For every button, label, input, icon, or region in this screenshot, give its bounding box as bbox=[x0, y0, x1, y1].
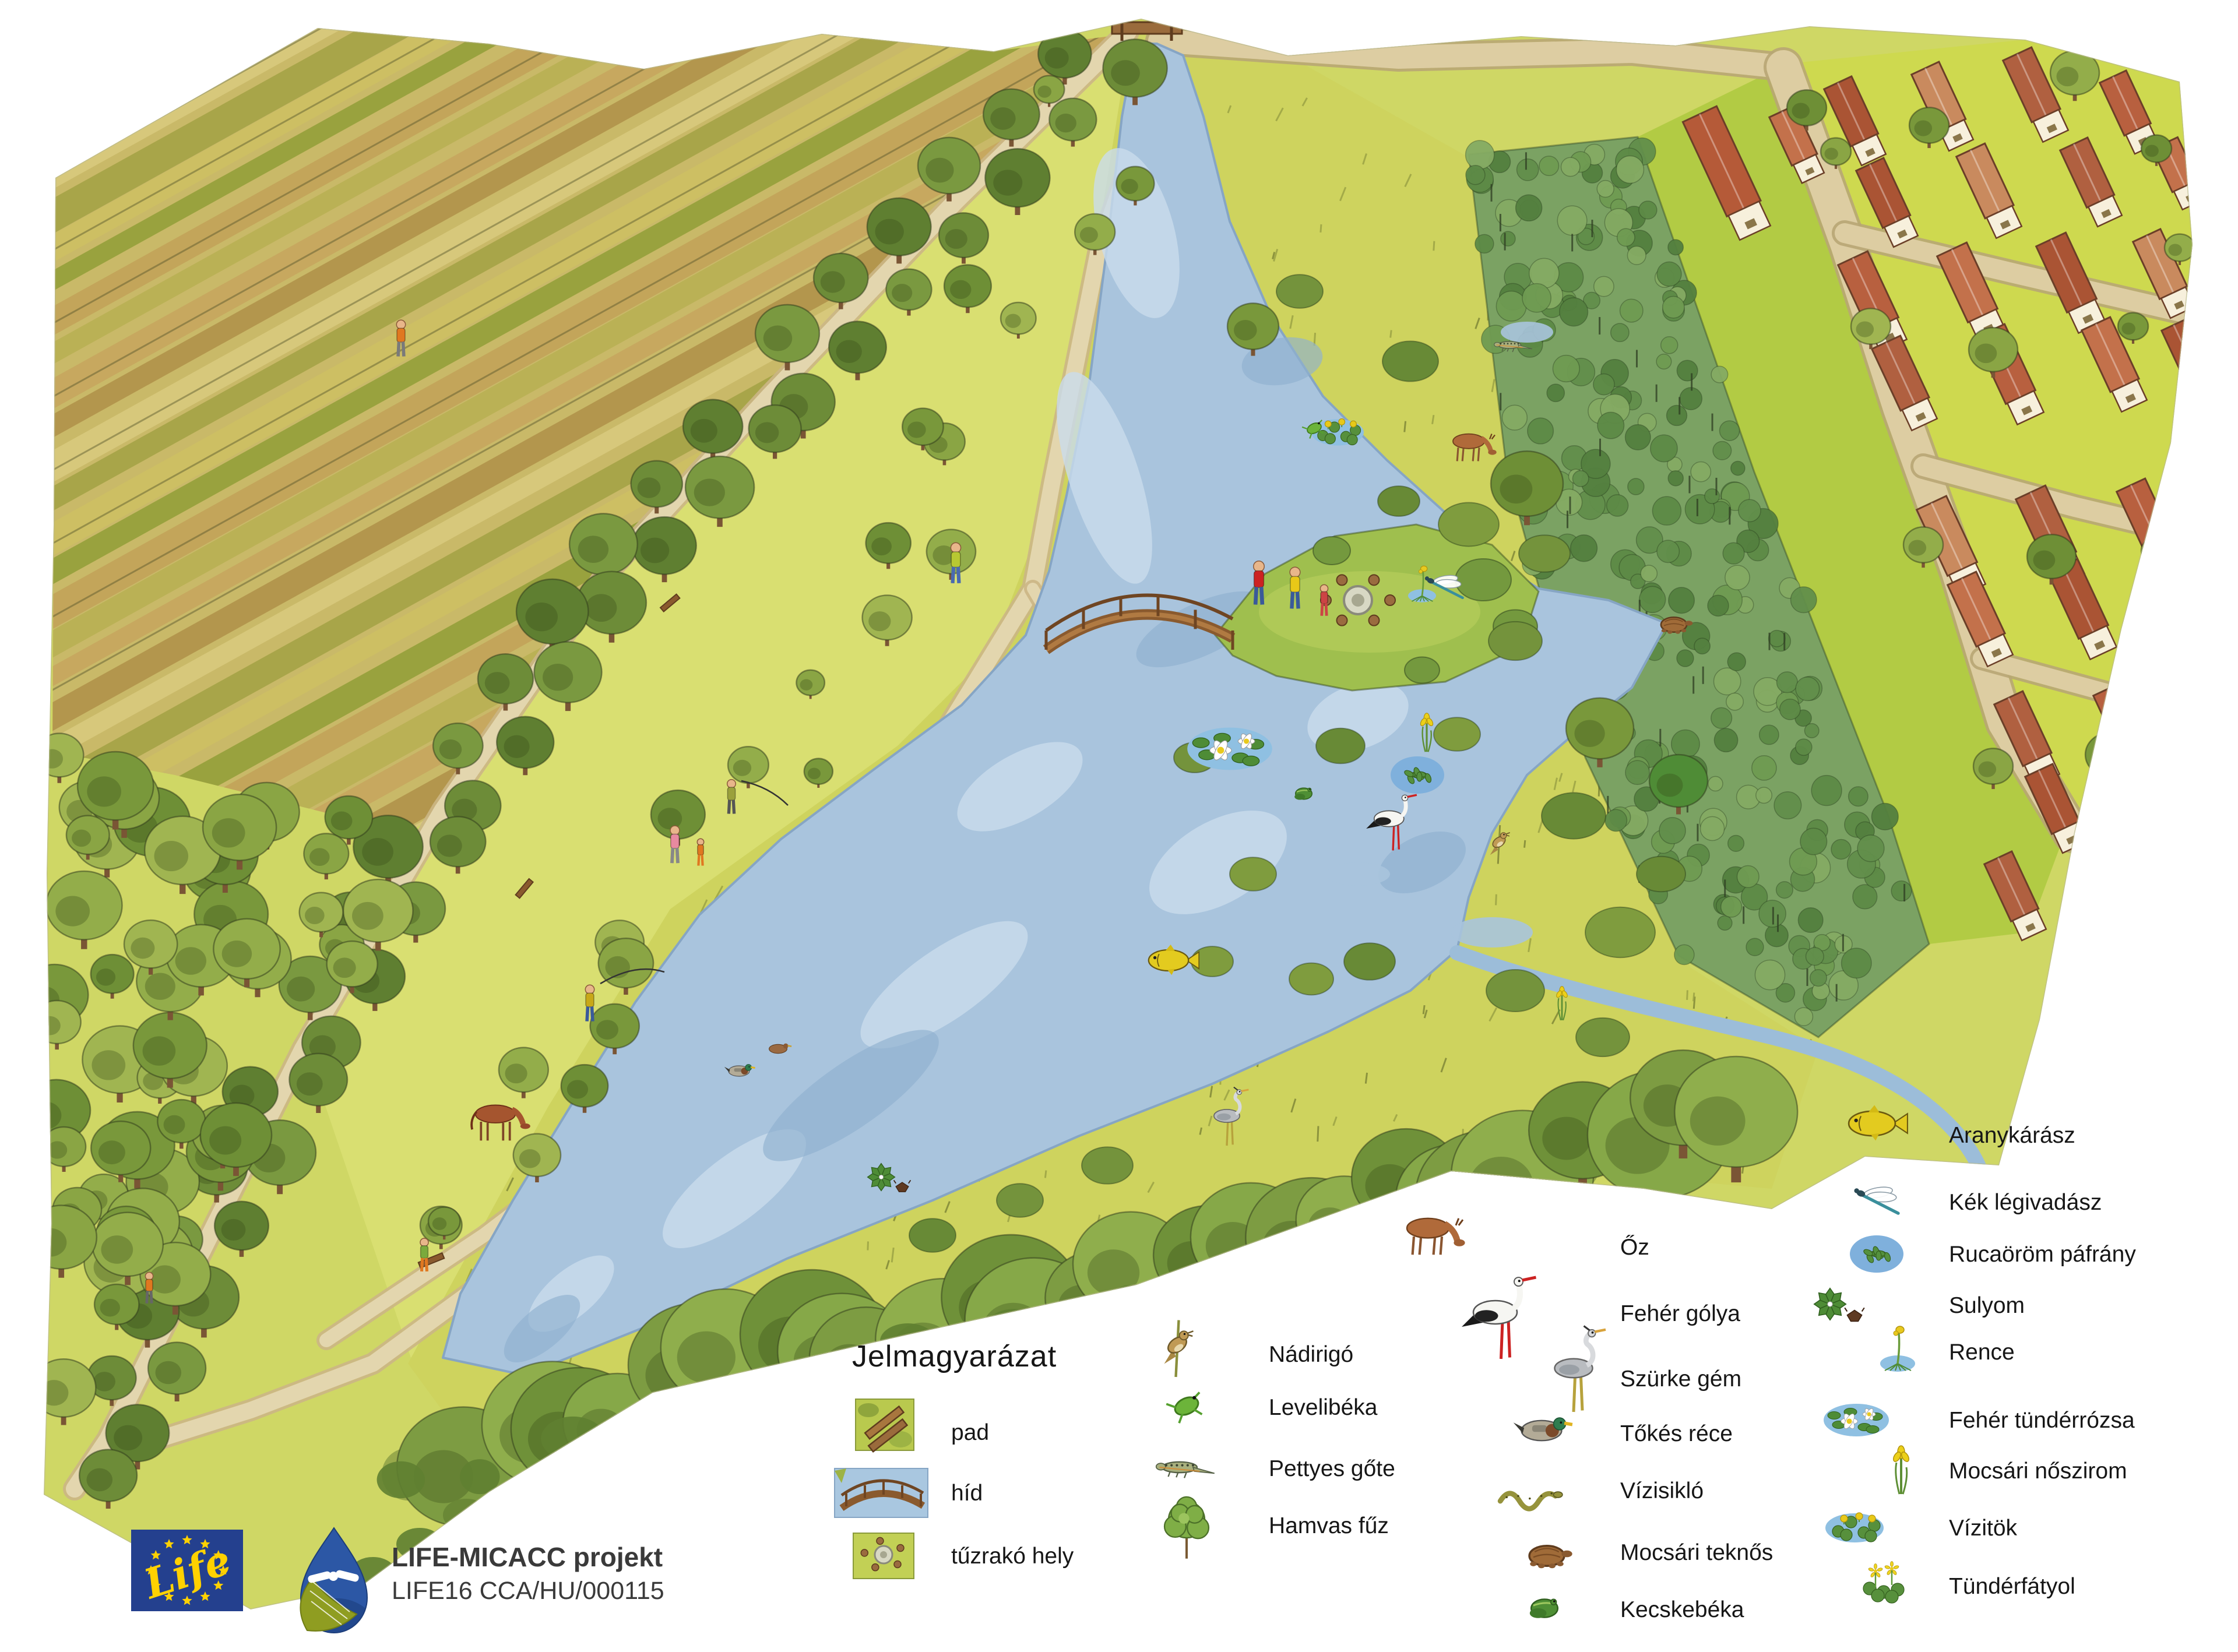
bridge-icon bbox=[835, 1468, 928, 1517]
legend-label-levelibeka: Levelibéka bbox=[1269, 1395, 1378, 1420]
fringed-water-lily bbox=[1863, 1561, 1904, 1603]
legend-label-tunderfatyol: Tündérfátyol bbox=[1949, 1574, 2075, 1599]
legend-title: Jelmagyarázat bbox=[852, 1340, 1057, 1373]
legend-label-oz: Őz bbox=[1620, 1235, 1649, 1260]
legend-label-tokes-rece: Tőkés réce bbox=[1620, 1421, 1733, 1446]
frog bbox=[1294, 788, 1312, 799]
legend-label-mocsari-noszirom: Mocsári nőszirom bbox=[1949, 1459, 2127, 1484]
grey-heron bbox=[1555, 1326, 1606, 1413]
water-fern bbox=[1850, 1235, 1903, 1273]
white-water-lily bbox=[1187, 728, 1272, 770]
yellow-iris bbox=[1892, 1446, 1910, 1494]
house bbox=[2144, 558, 2204, 642]
legend-label-kecskebeka: Kecskebéka bbox=[1620, 1597, 1744, 1622]
water-fern bbox=[1391, 756, 1444, 794]
legend-label-sulyom: Sulyom bbox=[1949, 1293, 2025, 1318]
grey-willow bbox=[1164, 1497, 1209, 1559]
legend-label-aranykarasz: Aranykárász bbox=[1949, 1123, 2075, 1148]
roe-deer bbox=[1407, 1218, 1465, 1255]
bladderwort bbox=[1880, 1326, 1915, 1372]
pond-turtle bbox=[1529, 1546, 1572, 1569]
legend-label-kek-legivadasz: Kék légivadász bbox=[1949, 1190, 2102, 1215]
mallard bbox=[1514, 1418, 1572, 1440]
legend-label-feher-golya: Fehér gólya bbox=[1620, 1301, 1740, 1326]
legend-label-hamvas-fuz: Hamvas fűz bbox=[1269, 1513, 1389, 1538]
frog bbox=[1530, 1599, 1558, 1618]
house bbox=[2126, 758, 2186, 842]
tree bbox=[2085, 732, 2134, 783]
yellow-pond-lily bbox=[1825, 1513, 1884, 1542]
damselfly bbox=[1852, 1175, 1906, 1213]
nature-map-poster: Jelmagyarázat pad híd tűzrakó hely Nádir… bbox=[0, 0, 2238, 1652]
legend-label-rucaorom-pafrany: Rucaöröm páfrány bbox=[1949, 1242, 2136, 1267]
legend-label-vizitok: Vízitök bbox=[1949, 1516, 2018, 1541]
white-stork bbox=[1462, 1277, 1536, 1359]
legend-label-rence: Rence bbox=[1949, 1340, 2015, 1365]
water-chestnut bbox=[1814, 1288, 1864, 1322]
legend-label-mocsari-teknos: Mocsári teknős bbox=[1620, 1540, 1773, 1565]
legend-label-vizisiklo: Vízisikló bbox=[1620, 1478, 1704, 1503]
grass-snake bbox=[1500, 1492, 1563, 1509]
footer-logos: Life LIFE-MICACC projekt LIFE16 CCA/HU/0… bbox=[131, 1528, 664, 1633]
house bbox=[2165, 685, 2218, 758]
reed-warbler bbox=[1164, 1320, 1194, 1378]
legend-label-nadirigo: Nádirigó bbox=[1269, 1342, 1353, 1367]
project-name: LIFE-MICACC projekt bbox=[392, 1542, 663, 1572]
legend-label-feher-tunderrozsa: Fehér tündérrózsa bbox=[1949, 1408, 2135, 1433]
tree-frog bbox=[1166, 1389, 1208, 1426]
house bbox=[2093, 682, 2160, 778]
legend-label-szurke-gem: Szürke gém bbox=[1620, 1366, 1741, 1392]
fire-pit-icon bbox=[853, 1533, 914, 1579]
legend-label-hid: híd bbox=[951, 1481, 983, 1506]
bench-icon bbox=[856, 1399, 914, 1452]
project-code: LIFE16 CCA/HU/000115 bbox=[392, 1577, 664, 1605]
spotted-newt bbox=[1156, 1462, 1215, 1478]
legend-label-tuzrako-hely: tűzrakó hely bbox=[951, 1544, 1074, 1569]
legend-label-pettyes-gote: Pettyes gőte bbox=[1269, 1456, 1395, 1481]
tree bbox=[2141, 537, 2172, 568]
white-water-lily bbox=[1824, 1404, 1889, 1436]
legend-label-pad: pad bbox=[951, 1420, 989, 1445]
